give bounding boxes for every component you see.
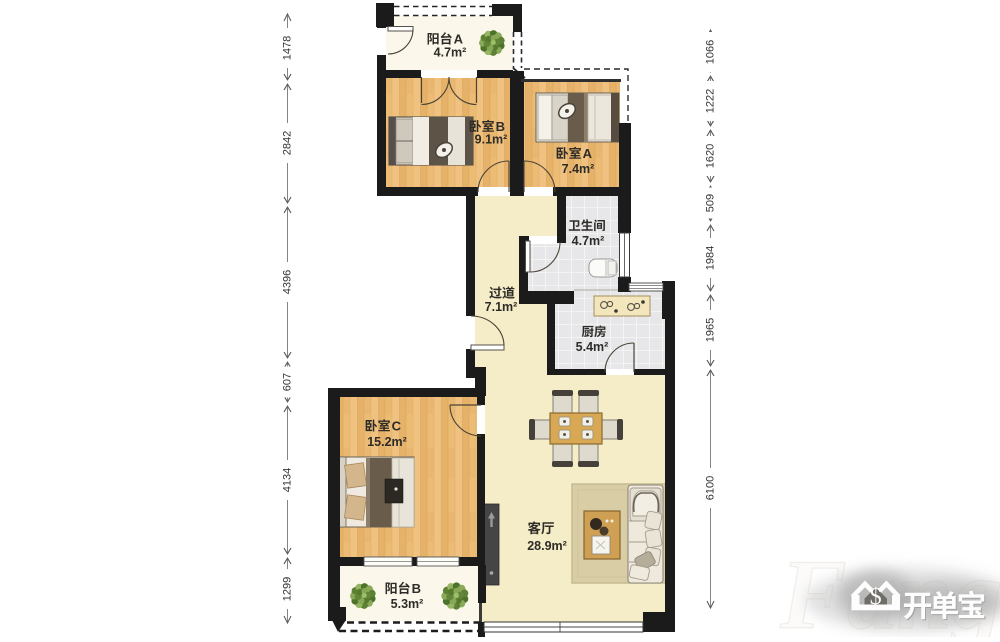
svg-text:4.7m²: 4.7m² (572, 234, 605, 248)
svg-text:A: A (454, 32, 464, 47)
svg-text:4134: 4134 (282, 468, 294, 492)
svg-text:1984: 1984 (705, 246, 717, 270)
svg-text:607: 607 (282, 373, 294, 391)
svg-text:1965: 1965 (705, 318, 717, 342)
svg-text:9.1m²: 9.1m² (475, 133, 508, 147)
svg-text:B: B (412, 581, 421, 596)
svg-text:509: 509 (705, 194, 717, 212)
svg-text:7.1m²: 7.1m² (485, 300, 518, 314)
svg-text:1222: 1222 (705, 89, 717, 113)
svg-text:4396: 4396 (282, 270, 294, 294)
svg-text:1478: 1478 (282, 36, 294, 60)
svg-text:1620: 1620 (705, 144, 717, 168)
svg-text:1066: 1066 (705, 40, 717, 64)
svg-text:1299: 1299 (282, 577, 294, 601)
svg-text:2842: 2842 (282, 131, 294, 155)
svg-text:28.9m²: 28.9m² (527, 539, 567, 553)
svg-text:7.4m²: 7.4m² (562, 162, 595, 176)
svg-text:A: A (583, 146, 593, 161)
svg-text:C: C (392, 419, 402, 434)
svg-text:5.4m²: 5.4m² (576, 340, 609, 354)
svg-text:6100: 6100 (705, 476, 717, 500)
svg-text:5.3m²: 5.3m² (391, 597, 424, 611)
svg-text:15.2m²: 15.2m² (367, 435, 407, 449)
svg-text:4.7m²: 4.7m² (434, 46, 467, 60)
